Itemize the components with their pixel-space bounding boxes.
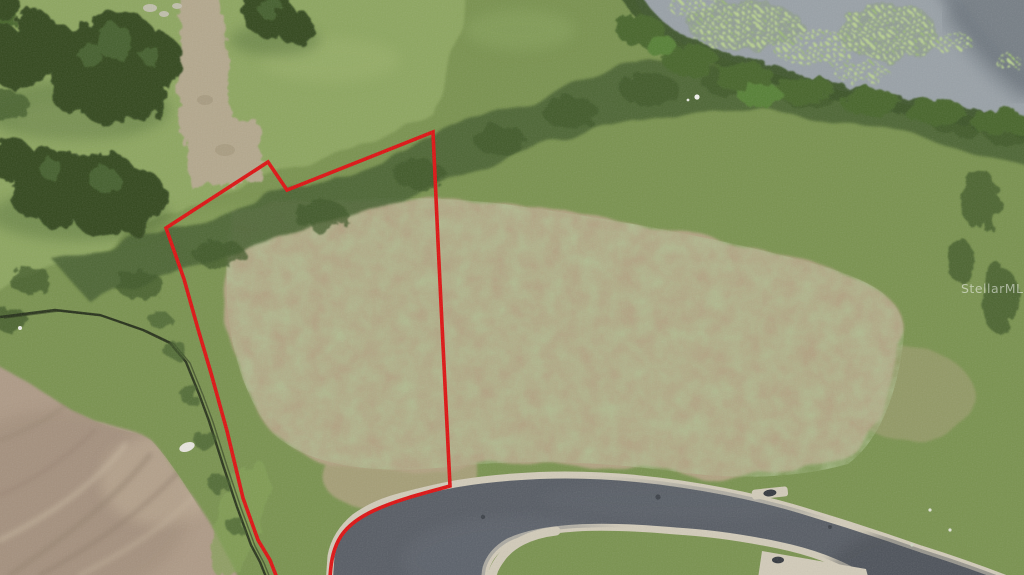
watermark-text: StellarMLS bbox=[961, 281, 1024, 296]
aerial-photo-canvas: StellarMLS bbox=[0, 0, 1024, 575]
aerial-photo: StellarMLS bbox=[0, 0, 1024, 575]
photo-grain-overlay bbox=[0, 0, 1024, 575]
